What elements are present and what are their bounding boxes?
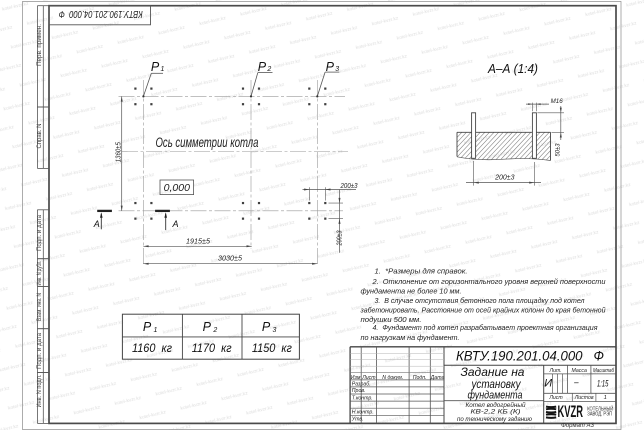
svg-text:М16: М16: [551, 98, 564, 105]
svg-text:А: А: [171, 219, 178, 229]
svg-text:Инв. N подл.: Инв. N подл.: [37, 374, 43, 407]
svg-text:А–А (1:4): А–А (1:4): [487, 61, 538, 76]
svg-text:1160 кг: 1160 кг: [132, 343, 172, 355]
svg-text:1170 кг: 1170 кг: [192, 343, 232, 355]
svg-text:КВТУ.190.201.04.000 Ф: КВТУ.190.201.04.000 Ф: [59, 8, 143, 19]
svg-text:2: 2: [266, 66, 271, 73]
svg-text:1. *Размеры для справок.: 1. *Размеры для справок.: [375, 267, 468, 276]
svg-text:50±3: 50±3: [555, 143, 562, 156]
svg-text:Изм: Изм: [351, 375, 361, 381]
svg-text:P: P: [258, 60, 267, 74]
svg-text:1: 1: [161, 66, 165, 73]
svg-text:Формат А3: Формат А3: [561, 423, 594, 429]
svg-text:Лист: Лист: [361, 375, 376, 381]
svg-text:1:15: 1:15: [597, 378, 609, 389]
svg-text:2. Отклонение от горизонтальн: 2. Отклонение от горизонтального уровня …: [371, 277, 605, 286]
svg-text:N докум.: N докум.: [382, 375, 403, 381]
svg-text:4. Фундамент под котел разраб: 4. Фундамент под котел разрабатывает про…: [373, 323, 598, 332]
svg-text:1915±5: 1915±5: [186, 236, 211, 245]
svg-text:по нагрузкам на фундамент.: по нагрузкам на фундамент.: [361, 333, 460, 342]
svg-text:1: 1: [154, 327, 158, 334]
svg-text:Справ. N: Справ. N: [37, 124, 43, 149]
svg-text:Масса: Масса: [572, 368, 587, 374]
svg-text:Инв. N дубл.: Инв. N дубл.: [37, 260, 43, 285]
svg-text:1: 1: [604, 395, 607, 401]
svg-text:фундамента не более 10 мм.: фундамента не более 10 мм.: [361, 287, 462, 296]
svg-text:Пров.: Пров.: [352, 388, 366, 394]
svg-text:Подп. и дата: Подп. и дата: [37, 214, 43, 251]
svg-text:200±3: 200±3: [494, 175, 515, 182]
svg-text:P: P: [151, 60, 160, 74]
svg-text:Масштаб: Масштаб: [593, 368, 615, 374]
svg-text:КВТУ.190.201.04.000 Ф: КВТУ.190.201.04.000 Ф: [456, 348, 604, 363]
svg-text:Утв.: Утв.: [352, 417, 364, 423]
svg-text:КВ-2,2 КБ (К): КВ-2,2 КБ (К): [471, 409, 521, 416]
svg-text:3: 3: [273, 327, 277, 334]
svg-text:Лит.: Лит.: [549, 368, 562, 374]
svg-text:ЗАВОД, РЭП: ЗАВОД, РЭП: [587, 412, 612, 418]
svg-text:P: P: [203, 320, 212, 334]
svg-text:0,000: 0,000: [164, 182, 190, 194]
svg-text:фундамента: фундамента: [468, 389, 523, 401]
svg-text:Н.контр.: Н.контр.: [352, 410, 374, 416]
svg-text:3030±5: 3030±5: [218, 254, 243, 263]
svg-text:3. В случае отсутствия бетонн: 3. В случае отсутствия бетонного пола пл…: [375, 296, 585, 305]
svg-text:P: P: [143, 320, 152, 334]
svg-text:Перв. примен.: Перв. примен.: [37, 24, 43, 66]
svg-text:KVZR: KVZR: [558, 403, 584, 421]
svg-text:Подп. и дата: Подп. и дата: [37, 332, 43, 369]
svg-text:И: И: [544, 378, 552, 390]
svg-text:Листов: Листов: [574, 395, 594, 401]
svg-text:1150 кг: 1150 кг: [252, 343, 292, 355]
svg-text:Разраб.: Разраб.: [352, 381, 371, 387]
svg-text:Ось симметрии котла: Ось симметрии котла: [156, 134, 259, 150]
svg-text:забетонировать. Расстояние от: забетонировать. Расстояние от осей крайн…: [360, 306, 606, 315]
svg-text:Дата: Дата: [430, 375, 445, 381]
svg-text:Подп.: Подп.: [413, 375, 427, 381]
svg-text:200±3: 200±3: [340, 183, 358, 190]
svg-text:–: –: [573, 378, 579, 387]
svg-text:P: P: [262, 320, 271, 334]
svg-text:Т.контр.: Т.контр.: [352, 395, 373, 401]
svg-text:Лист: Лист: [548, 395, 563, 401]
svg-text:1360±5: 1360±5: [114, 141, 123, 162]
svg-text:А: А: [93, 219, 100, 229]
svg-text:Задание на: Задание на: [461, 365, 525, 379]
svg-text:2: 2: [212, 327, 217, 334]
svg-text:по техническому заданию: по техническому заданию: [457, 416, 532, 423]
svg-text:200±3: 200±3: [337, 230, 344, 246]
svg-text:Взам. инв. N: Взам. инв. N: [37, 293, 43, 321]
